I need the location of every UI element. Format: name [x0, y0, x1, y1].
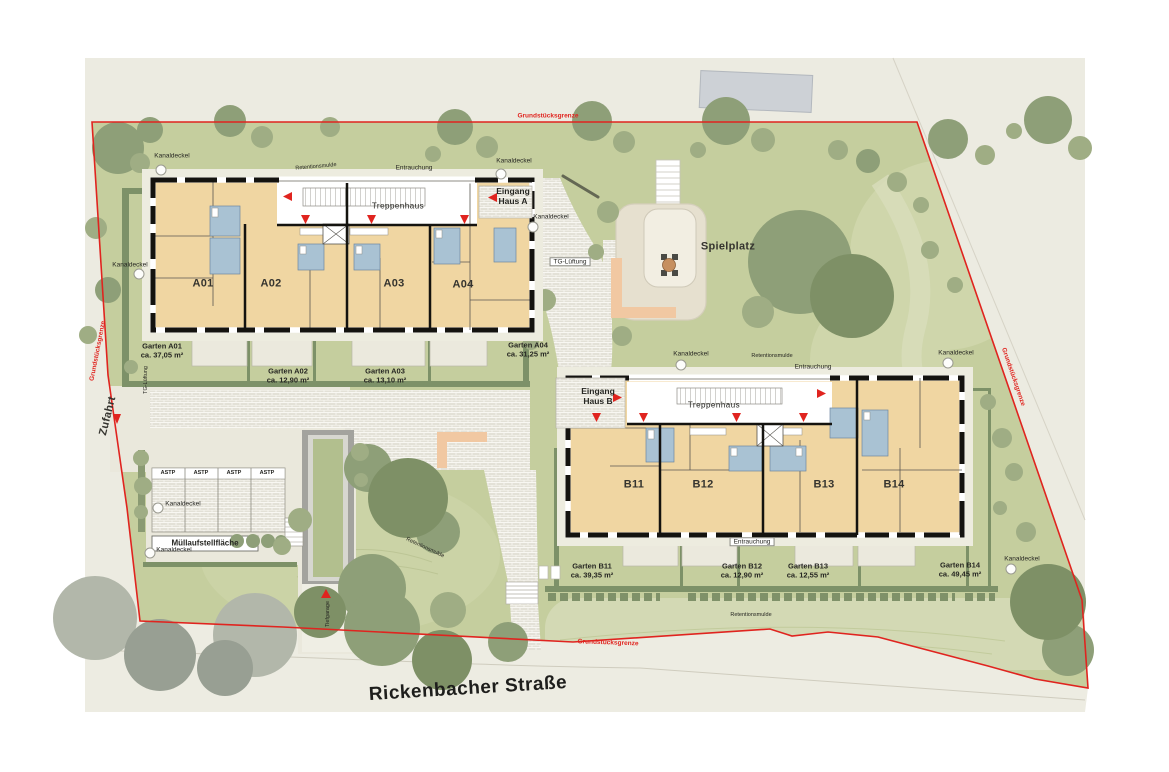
garden-label-a04: Garten A04ca. 31,25 m² [507, 341, 550, 358]
entrance-house: Haus A [496, 197, 530, 207]
manhole-label: Kanaldeckel [533, 213, 568, 220]
building-a [147, 174, 538, 336]
building-b [556, 372, 968, 541]
smoke-extraction-label: Entrauchung [795, 363, 832, 370]
parking-stall-label: ASTP [260, 470, 275, 476]
unit-label-a03: A03 [383, 278, 404, 291]
unit-label-b12: B12 [692, 479, 713, 492]
garden-label-a03: Garten A03ca. 13,10 m² [364, 367, 407, 384]
parking-stall-label: ASTP [227, 470, 242, 476]
unit-label-a01: A01 [192, 278, 213, 291]
smoke-extraction-label: Entrauchung [730, 537, 775, 546]
manhole-label: Kanaldeckel [938, 349, 973, 356]
entrance-label-b: Eingang Haus B [581, 387, 615, 407]
garden-label-b11: Garten B11ca. 39,35 m² [571, 562, 614, 579]
garage-vent-label: TG-Lüftung [550, 257, 591, 266]
parking-stall-label: ASTP [161, 470, 176, 476]
garage-vent-label: TG-Lüftung [143, 366, 149, 394]
unit-label-a04: A04 [452, 279, 473, 292]
manhole-label: Kanaldeckel [496, 157, 531, 164]
manhole-label: Kanaldeckel [165, 500, 200, 507]
manhole-label: Kanaldeckel [1004, 555, 1039, 562]
garden-label-b13: Garten B13ca. 12,55 m² [787, 562, 830, 579]
unit-label-b13: B13 [813, 479, 834, 492]
entrance-label-a: Eingang Haus A [496, 187, 530, 207]
stairwell-label-b: Treppenhaus [688, 400, 740, 409]
playground-label: Spielplatz [701, 241, 755, 254]
unit-label-a02: A02 [260, 278, 281, 291]
manhole-label: Kanaldeckel [156, 546, 191, 553]
smoke-extraction-label: Entrauchung [396, 164, 433, 171]
unit-label-b14: B14 [883, 479, 904, 492]
garage-ramp-label: Tiefgarage [325, 601, 331, 627]
stairwell-label-a: Treppenhaus [372, 201, 424, 210]
garden-label-a02: Garten A02ca. 12,90 m² [267, 367, 310, 384]
boundary-label-top: Grundstücksgrenze [517, 112, 578, 119]
manhole-label: Kanaldeckel [673, 350, 708, 357]
site-plan: Grundstücksgrenze Grundstücksgrenze Grun… [0, 0, 1169, 772]
manhole-label: Kanaldeckel [112, 261, 147, 268]
parking-stall-label: ASTP [194, 470, 209, 476]
retention-label: Retentionsmulde [751, 353, 792, 359]
manhole-label: Kanaldeckel [154, 152, 189, 159]
entrance-house: Haus B [581, 397, 615, 407]
garden-label-b12: Garten B12ca. 12,90 m² [721, 562, 764, 579]
retention-label: Retentionsmulde [730, 612, 771, 618]
garden-label-a01: Garten A01ca. 37,05 m² [141, 342, 184, 359]
unit-label-b11: B11 [624, 479, 644, 492]
garden-label-b14: Garten B14ca. 49,45 m² [939, 561, 982, 578]
